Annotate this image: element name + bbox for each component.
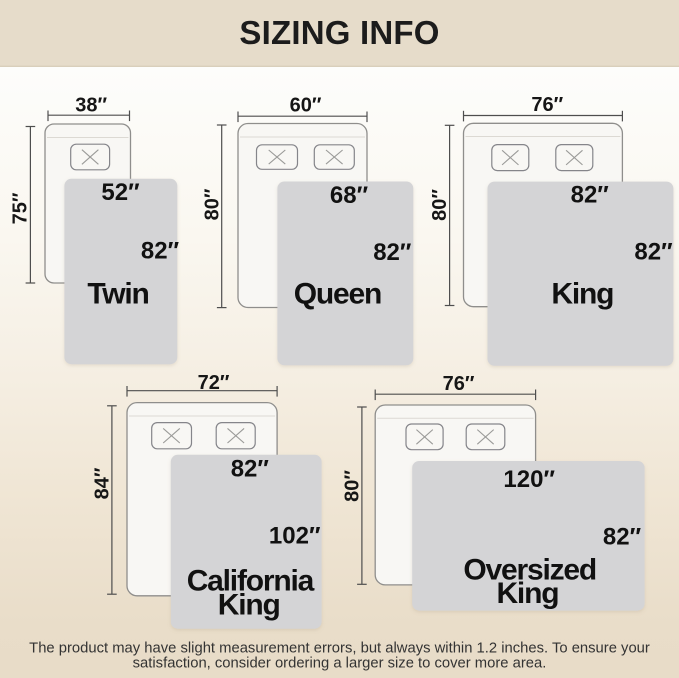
svg-text:76″: 76″ xyxy=(531,94,563,116)
svg-text:52″: 52″ xyxy=(101,179,140,206)
svg-text:76″: 76″ xyxy=(443,373,475,395)
svg-text:120″: 120″ xyxy=(503,466,555,493)
svg-text:Queen: Queen xyxy=(294,278,381,311)
svg-text:80″: 80″ xyxy=(429,189,451,221)
svg-text:68″: 68″ xyxy=(330,182,369,209)
svg-text:102″: 102″ xyxy=(269,522,321,549)
svg-text:satisfaction, consider orderin: satisfaction, consider ordering a larger… xyxy=(133,655,547,671)
svg-text:60″: 60″ xyxy=(290,95,322,117)
svg-text:82″: 82″ xyxy=(571,182,610,209)
svg-text:King: King xyxy=(218,589,280,622)
svg-text:80″: 80″ xyxy=(201,188,223,220)
svg-text:82″: 82″ xyxy=(603,524,642,551)
svg-text:75″: 75″ xyxy=(9,192,31,224)
svg-text:SIZING INFO: SIZING INFO xyxy=(239,14,439,51)
svg-text:King: King xyxy=(551,278,613,311)
svg-text:Twin: Twin xyxy=(87,278,148,311)
svg-text:The product may have slight me: The product may have slight measurement … xyxy=(29,641,650,657)
svg-text:82″: 82″ xyxy=(634,239,673,266)
svg-text:84″: 84″ xyxy=(92,467,114,499)
svg-text:King: King xyxy=(496,577,558,610)
svg-text:82″: 82″ xyxy=(231,455,270,482)
svg-text:82″: 82″ xyxy=(373,239,412,266)
svg-text:38″: 38″ xyxy=(75,95,107,117)
svg-text:82″: 82″ xyxy=(141,238,180,265)
svg-text:80″: 80″ xyxy=(342,470,364,502)
